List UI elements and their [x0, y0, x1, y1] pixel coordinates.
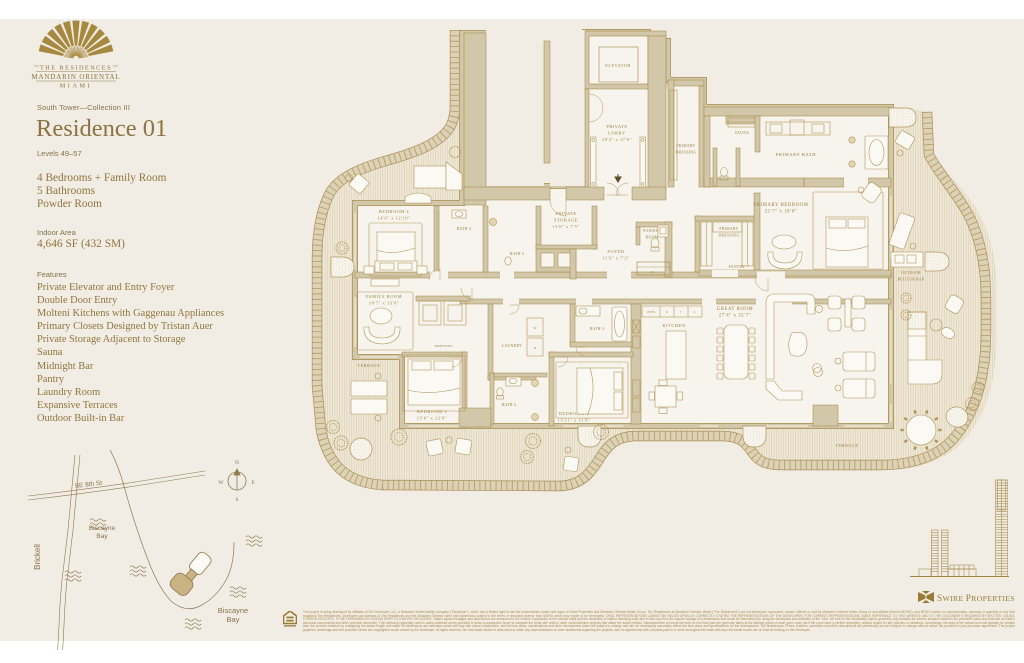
- svg-text:THE RESIDENCES: THE RESIDENCES: [40, 65, 112, 72]
- svg-text:Brickell: Brickell: [33, 544, 42, 570]
- svg-text:LAUNDRY: LAUNDRY: [502, 344, 522, 348]
- svg-text:E: E: [251, 480, 255, 486]
- svg-text:SWIRE PROPERTIES: SWIRE PROPERTIES: [937, 593, 1015, 603]
- svg-text:BATH 2: BATH 2: [502, 403, 517, 407]
- svg-text:R: R: [666, 311, 668, 314]
- svg-text:MANDARIN ORIENTAL: MANDARIN ORIENTAL: [31, 73, 120, 81]
- svg-text:PANTRY: PANTRY: [729, 265, 745, 269]
- svg-text:GREAT ROOM27′4″ x 32′7″: GREAT ROOM27′4″ x 32′7″: [717, 307, 754, 319]
- svg-text:KITCHEN: KITCHEN: [662, 323, 685, 328]
- svg-text:TERRACE: TERRACE: [358, 363, 381, 368]
- svg-text:TERRACE: TERRACE: [836, 443, 859, 448]
- svg-text:OVEN: OVEN: [647, 311, 655, 314]
- svg-text:S: S: [235, 497, 238, 503]
- svg-text:CL: CL: [651, 270, 655, 274]
- svg-text:FAMILY ROOM10′7″ x 13′0″: FAMILY ROOM10′7″ x 13′0″: [366, 294, 402, 306]
- svg-text:BEDROOM 414′6″ x 12′10″: BEDROOM 414′6″ x 12′10″: [377, 209, 410, 221]
- svg-text:BATH 5: BATH 5: [510, 252, 525, 256]
- svg-text:PRIMARY BATH: PRIMARY BATH: [776, 152, 816, 157]
- svg-text:BATH 3: BATH 3: [590, 327, 605, 331]
- svg-text:SAUNA: SAUNA: [735, 131, 750, 135]
- svg-text:BATH 4: BATH 4: [457, 227, 472, 231]
- svg-text:DRESSING: DRESSING: [435, 344, 454, 348]
- svg-text:C: C: [694, 311, 696, 314]
- svg-text:BiscayneBay: BiscayneBay: [218, 606, 248, 624]
- svg-text:MIAMI: MIAMI: [60, 83, 93, 90]
- svg-text:W: W: [218, 480, 224, 486]
- svg-text:ELEVATOR: ELEVATOR: [605, 63, 630, 68]
- svg-text:N: N: [235, 460, 239, 466]
